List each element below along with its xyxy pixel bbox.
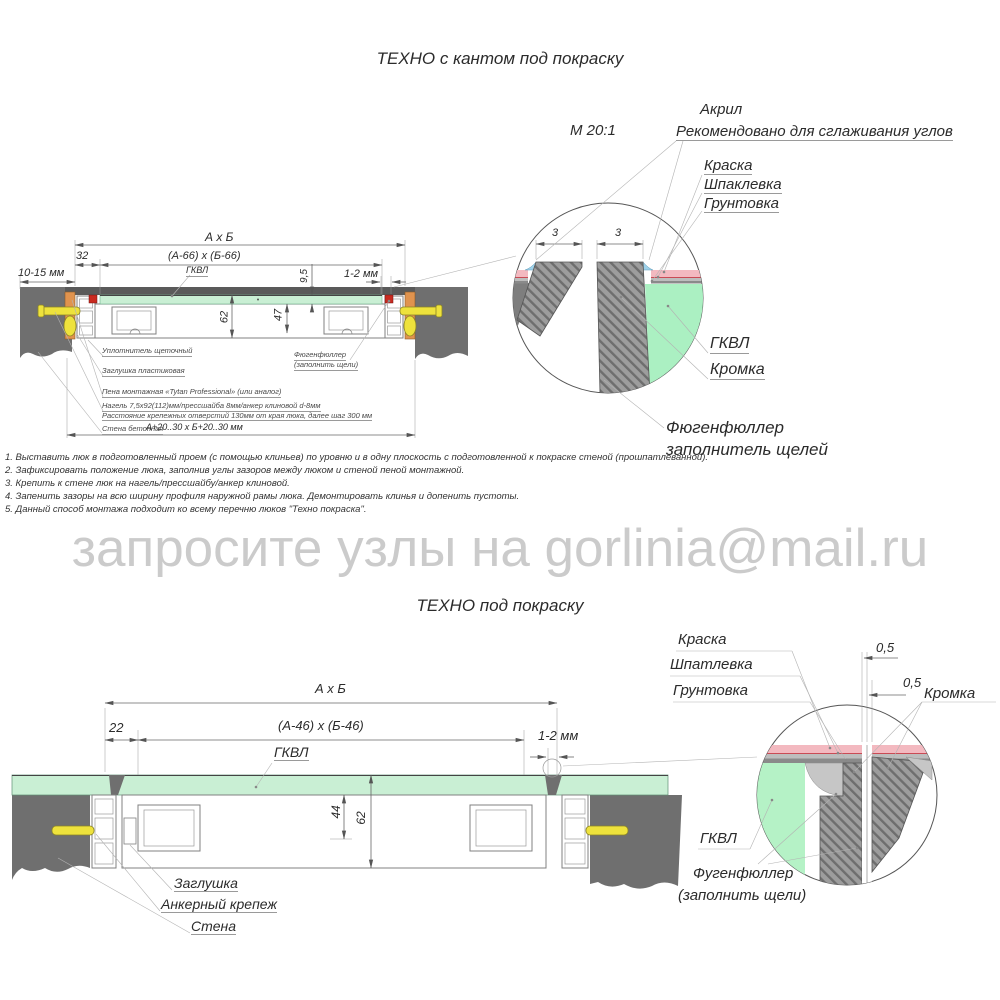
left-wall-bottom [12, 795, 90, 880]
detail-filler-bottom-line2: (заполнить щели) [678, 888, 806, 903]
dim-a66: (А-66) х (Б-66) [168, 251, 241, 262]
detail-filler-line1: Фюгенфюллер [666, 419, 784, 436]
dim-47: 47 [274, 309, 285, 321]
detail-gap3-right: 3 [615, 228, 621, 239]
right-wall [415, 287, 468, 359]
anchor-left [40, 307, 80, 315]
note-4: 4. Запенить зазоры на всю ширину профиля… [5, 491, 997, 503]
detail-paint: Краска [704, 158, 752, 175]
dim-62-bottom: 62 [355, 811, 367, 824]
detail-marker-circle [543, 759, 561, 777]
anchor-right-bottom [586, 826, 628, 835]
dim-axb-bottom: А х Б [315, 682, 346, 695]
detail-primer-bottom: Грунтовка [673, 683, 748, 698]
callout-spacing: Расстояние крепежных отверстий 130мм от … [102, 412, 372, 422]
callout-plug-bottom: Заглушка [174, 876, 238, 892]
detail-gap05-b: 0,5 [903, 676, 921, 689]
anchor-left-bottom [52, 826, 94, 835]
detail-acryl-note: Рекомендовано для сглаживания углов [676, 124, 953, 141]
detail-edge: Кромка [710, 362, 765, 380]
dim-44: 44 [330, 805, 342, 818]
anchor-right [400, 307, 440, 315]
detail-gap3-left: 3 [552, 228, 558, 239]
dim-1-2: 1-2 мм [344, 269, 378, 280]
detail-scale: М 20:1 [570, 123, 616, 138]
bottom-title: ТЕХНО под покраску [0, 597, 1000, 614]
detail-gkvl-area [645, 284, 706, 394]
callout-wall-bottom: Стена [191, 919, 236, 935]
callout-brush-seal: Уплотнитель щеточный [102, 347, 192, 357]
label-gkvl-bottom: ГКВЛ [274, 745, 309, 761]
detail-edge-bottom: Кромка [924, 686, 975, 701]
callout-plastic-plug: Заглушка пластиковая [102, 367, 185, 377]
detail-gkvl: ГКВЛ [710, 336, 749, 354]
detail-primer: Грунтовка [704, 196, 779, 213]
note-2: 2. Зафиксировать положение люка, заполни… [5, 465, 997, 477]
dim-axb: А х Б [205, 231, 233, 243]
detail-acryl: Акрил [700, 102, 742, 117]
drawing-sheet: ТЕХНО с кантом под покраску А х Б (А-66)… [0, 0, 1000, 1000]
label-gkvl-top: ГКВЛ [186, 266, 208, 277]
callout-anchor-bottom: Анкерный крепеж [161, 897, 277, 913]
detail-paint-bottom: Краска [678, 632, 726, 647]
detail-filler-bottom-line1: Фугенфюллер [693, 866, 793, 881]
note-5: 5. Данный способ монтажа подходит ко все… [5, 504, 997, 516]
gkvl-panel [100, 295, 382, 304]
installation-notes: 1. Выставить люк в подготовленный проем … [5, 452, 997, 517]
top-detail-circle [505, 141, 708, 428]
detail-putty: Шпаклевка [704, 177, 782, 194]
callout-concrete-wall: Стена бетонная [102, 425, 163, 435]
note-3: 3. Крепить к стене люк на нагель/прессша… [5, 478, 997, 490]
detail-gap05-a: 0,5 [876, 641, 894, 654]
dim-10-15: 10-15 мм [18, 268, 64, 279]
detail-putty-bottom: Шпатлевка [670, 657, 753, 672]
dim-32: 32 [76, 251, 88, 262]
right-wall-bottom [590, 795, 682, 889]
callout-foam: Пена монтажная «Tytan Professional» (или… [102, 388, 281, 398]
seal-left [89, 295, 97, 303]
bottom-section-drawing [12, 703, 757, 933]
note-1: 1. Выставить люк в подготовленный проем … [5, 452, 997, 464]
callout-filler-line2: (заполнить щели) [294, 361, 358, 371]
dim-1-2-bottom: 1-2 мм [538, 729, 578, 742]
detail-gkvl-bottom-label: ГКВЛ [700, 831, 737, 846]
dim-a46: (А-46) х (Б-46) [278, 719, 364, 732]
top-title: ТЕХНО с кантом под покраску [0, 50, 1000, 67]
dim-22: 22 [109, 721, 123, 734]
dim-62: 62 [220, 311, 231, 323]
dim-9-5: 9,5 [300, 269, 310, 283]
